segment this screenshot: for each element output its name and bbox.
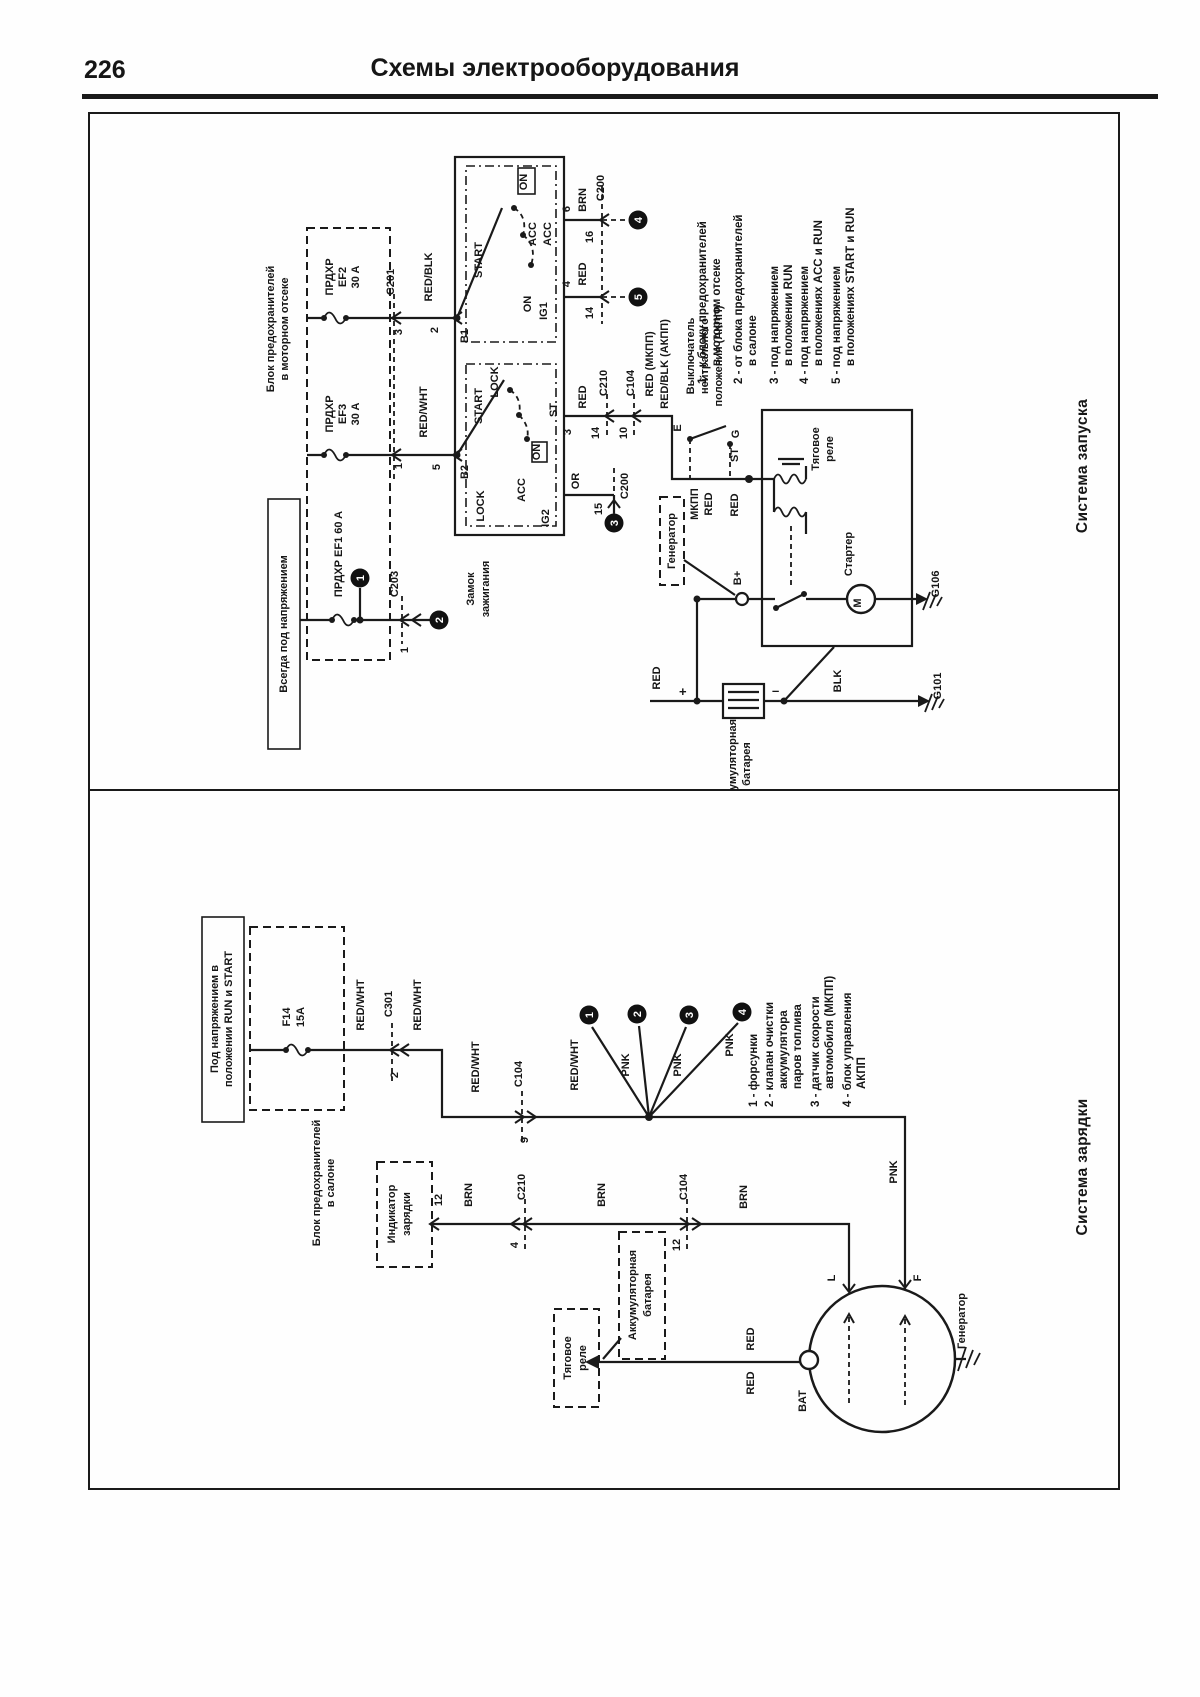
junction-dot <box>343 315 349 321</box>
pin-label: 14 <box>590 426 602 439</box>
callout-number: 3 <box>609 520 621 526</box>
pin-label: 3 <box>562 429 574 435</box>
switch-pos-label: ACC <box>516 478 528 502</box>
switch-pos-label: START <box>473 388 485 424</box>
fuse-ef1-label: ПРДХР EF1 60 A <box>333 511 345 597</box>
junction-dot <box>454 315 461 322</box>
contact-dot <box>520 232 526 238</box>
fuse-ef2-label: EF2 <box>337 267 349 287</box>
terminal-label: B2 <box>459 465 471 479</box>
charge-indicator: Индикатор зарядки 12 <box>377 1162 445 1267</box>
pin-label: 2 <box>389 1072 401 1078</box>
switch-pos-label: LOCK <box>489 366 501 397</box>
legend-line: 1 - форсунки <box>748 1034 760 1107</box>
battery: RED + – BLK G101 Аккумуляторная батарея <box>651 596 944 790</box>
wire-label: RED <box>651 666 663 689</box>
ground-label: G101 <box>932 673 944 700</box>
terminal-label: ST <box>729 448 741 462</box>
connector-label: C210 <box>516 1174 528 1200</box>
wire-label: PNK <box>620 1053 632 1076</box>
fuse-ef2-label: 30 A <box>350 266 362 289</box>
switch-pos-label: START <box>473 242 485 278</box>
connector-label: C200 <box>595 175 607 201</box>
connector-label: C201 <box>385 269 397 295</box>
legend: 1 - форсунки 2 - клапан очистки аккумуля… <box>748 976 868 1107</box>
wire-label: PNK <box>724 1033 736 1056</box>
switch-pos-label: ON <box>518 174 530 191</box>
fuse-f14-label: F14 <box>281 1007 293 1027</box>
alternator-label: Генератор <box>956 1293 968 1349</box>
legend-line: автомобиля (МКПП) <box>824 976 836 1089</box>
junction-dot <box>351 617 357 623</box>
wire-label: МКПП <box>689 488 701 520</box>
wire-label: RED/WHT <box>355 979 367 1031</box>
legend-line: 4 - под напряжением <box>799 266 811 384</box>
terminal-label: E <box>672 424 684 431</box>
ignition-switch-outline <box>455 157 564 535</box>
pin-label: 16 <box>584 231 596 243</box>
pin-label: 14 <box>584 306 596 319</box>
battery-label: Аккумуляторная <box>727 719 739 789</box>
motor-label: M <box>852 598 864 607</box>
callout-number: 1 <box>355 575 367 581</box>
solenoid-label: Тяговое <box>810 427 822 470</box>
legend-line: в положениях START и RUN <box>845 207 857 366</box>
pin-label: 4 <box>509 1241 521 1248</box>
wire-label: OR <box>570 473 582 490</box>
ground-label: G106 <box>930 571 942 598</box>
legend-line: АКПП <box>856 1057 868 1089</box>
pin-label: 5 <box>431 464 443 470</box>
wire-label: RED <box>577 262 589 285</box>
connector-label: C200 <box>619 473 631 499</box>
switch-pos-label: ACC <box>527 222 539 246</box>
switch-outputs: 6 BRN C200 16 4 RED 14 3 RED C210 14 C10… <box>561 175 671 515</box>
pin-label: 12 <box>671 1239 683 1251</box>
fuse-ef3-label: ПРДХР <box>324 395 336 432</box>
alternator-icon <box>809 1286 955 1432</box>
solenoid-label: реле <box>824 436 836 462</box>
callout-number: 4 <box>633 216 645 223</box>
contact-dot <box>524 436 530 442</box>
pin-label: 6 <box>561 206 573 212</box>
wire-label: RED/BLK <box>423 253 435 302</box>
junction-dot <box>357 617 364 624</box>
header-rule <box>82 94 1158 99</box>
battery-label: батарея <box>642 1273 654 1317</box>
wire-label: RED <box>703 492 715 515</box>
fuse-icon <box>286 1045 308 1056</box>
contact-dot <box>687 436 693 442</box>
pin-label: 15 <box>593 503 605 515</box>
solenoid-label: Тяговое <box>562 1336 574 1379</box>
junction-dot <box>283 1047 289 1053</box>
hot-in-run-feed: Под напряжением в положении RUN и START <box>202 917 244 1122</box>
wire-label: RED/WHT <box>412 979 424 1031</box>
wire-label: RED <box>745 1371 757 1394</box>
battery-ref: Аккумуляторная батарея RED RED <box>619 1232 757 1395</box>
callout-number: 4 <box>737 1008 749 1015</box>
callout-number: 2 <box>632 1011 644 1017</box>
starting-system-diagram: Блок предохранителей в моторном отсеке П… <box>90 114 1116 789</box>
contact-dot <box>727 441 733 447</box>
neutral-switch-label: Выключатель <box>685 317 697 394</box>
wire-label: PNK <box>888 1160 900 1183</box>
fuse-ef3-label: 30 A <box>350 403 362 426</box>
always-hot-label: Всегда под напряжением <box>278 555 290 692</box>
solenoid-label: реле <box>577 1345 589 1371</box>
wire-label: RED/WHT <box>569 1039 581 1091</box>
legend-line: аккумулятора <box>778 1010 790 1089</box>
plus-sign: + <box>679 684 687 699</box>
battery-label: батарея <box>741 742 753 786</box>
fuse-ef2-label: ПРДХР <box>324 258 336 295</box>
contact-dot <box>801 591 807 597</box>
manual-page: 226 Схемы электрооборудования Блок предо… <box>0 0 1200 1697</box>
wire-label: BRN <box>463 1183 475 1207</box>
generator-ref: Генератор <box>660 497 684 585</box>
pin-label: 1 <box>393 463 405 469</box>
indicator-label: Индикатор <box>386 1184 398 1243</box>
terminal-label: IG1 <box>538 302 550 320</box>
diagram-title: Система запуска <box>1074 399 1091 533</box>
cabin-fuse-box: Блок предохранителей в салоне F14 15A <box>250 927 344 1246</box>
legend-line: в положениях ACC и RUN <box>813 220 825 366</box>
junction-dot <box>321 315 327 321</box>
wire-label: RED/WHT <box>418 386 430 438</box>
junction-dot <box>745 475 753 483</box>
fuse-ef3-label: EF3 <box>337 404 349 424</box>
switch-pos-label: ON <box>522 296 534 313</box>
engine-fuse-box-outline <box>307 228 390 660</box>
connector-label: C301 <box>383 991 395 1017</box>
wire-label: RED <box>745 1327 757 1350</box>
cabin-fuse-box-label: в салоне <box>325 1159 337 1208</box>
ground-icon <box>958 1347 980 1371</box>
pin-label: 2 <box>429 327 441 333</box>
terminal-label: B+ <box>732 571 744 585</box>
junction-dot <box>781 698 788 705</box>
legend-line: 3 - под напряжением <box>769 266 781 384</box>
engine-fuse-box-label: Блок предохранителей <box>265 266 277 393</box>
wire-label: BRN <box>596 1183 608 1207</box>
junction-dot <box>645 1113 653 1121</box>
callout-number: 3 <box>684 1012 696 1018</box>
diagram-divider <box>90 789 1118 791</box>
terminal-label: B1 <box>459 329 471 343</box>
callout-number: 2 <box>434 617 446 623</box>
contact-dot <box>773 605 779 611</box>
terminal-label: IG2 <box>540 509 552 527</box>
connector-label: C104 <box>513 1060 525 1087</box>
wire-label: RED/BLK (АКПП) <box>659 319 671 409</box>
legend-line: 1 - к блоку предохранителей <box>697 221 709 384</box>
hot-in-run-label: положении RUN и START <box>223 951 235 1087</box>
alternator: L F BAT Генератор <box>797 1274 980 1432</box>
starter-label: Стартер <box>843 532 855 577</box>
battery-label: Аккумуляторная <box>627 1250 639 1340</box>
switch-pos-label: ACC <box>542 222 554 246</box>
switch-pos-label: ON <box>531 444 543 461</box>
legend-line: паров топлива <box>792 1004 804 1089</box>
legend-line: 5 - под напряжением <box>831 266 843 384</box>
pin-label: 4 <box>561 280 573 287</box>
legend-line: в моторном отсеке <box>711 258 723 366</box>
wire-label: RED/WHT <box>470 1041 482 1093</box>
junction-dot <box>343 452 349 458</box>
solenoid-ref: Тяговое реле <box>554 1309 599 1407</box>
junction-dot <box>694 596 701 603</box>
terminal-label: L <box>826 1274 838 1281</box>
cabin-fuse-box-label: Блок предохранителей <box>311 1120 323 1247</box>
contact-dot <box>516 412 522 418</box>
engine-fuse-box-label: в моторном отсеке <box>279 278 291 381</box>
contact-dot <box>507 387 513 393</box>
legend-line: в положении RUN <box>783 264 795 366</box>
switch-pos-label: LOCK <box>475 490 487 521</box>
legend-line: 4 - блок управления <box>842 992 854 1107</box>
connector-label: C210 <box>598 370 610 396</box>
terminal-label: G <box>730 430 742 439</box>
wire-label: RED <box>729 493 741 516</box>
wire-label: RED (МКПП) <box>644 331 656 397</box>
terminal-label: BAT <box>797 1390 809 1412</box>
pin-label: 3 <box>393 329 405 335</box>
starter-assembly: Стартер Тяговое реле B+ M G106 <box>732 410 942 646</box>
brn-wire-run: BRN C210 4 BRN C104 12 BRN <box>463 1173 750 1251</box>
connector-label: C104 <box>625 369 637 396</box>
wire-label: PNK <box>672 1053 684 1076</box>
hot-in-run-label: Под напряжением в <box>209 965 221 1073</box>
minus-sign: – <box>772 683 779 698</box>
pin-label: 9 <box>519 1137 531 1143</box>
legend-line: в салоне <box>747 315 759 366</box>
callout-number: 1 <box>584 1012 596 1018</box>
legend: 1 - к блоку предохранителей в моторном о… <box>697 207 857 384</box>
pin-label: 10 <box>618 427 630 439</box>
junction-dot <box>321 452 327 458</box>
connector-label: C104 <box>678 1173 690 1200</box>
ignition-switch-label: Замок <box>465 572 477 606</box>
legend-line: 2 - клапан очистки <box>764 1002 776 1107</box>
ignition-switch: START LOCK ACC ACC ON ON IG1 B1 START LO… <box>455 157 564 617</box>
bplus-terminal <box>736 593 748 605</box>
pin-label: 1 <box>399 647 411 653</box>
page-title: Схемы электрооборудования <box>85 54 1025 83</box>
legend-line: 3 - датчик скорости <box>810 996 822 1107</box>
ignition-switch-label: зажигания <box>480 561 492 618</box>
wire-label: BRN <box>577 188 589 212</box>
connector-label: C203 <box>389 571 401 597</box>
junction-dot <box>694 698 701 705</box>
fuse-f14-label: 15A <box>295 1007 307 1027</box>
callout-badges: 1 2 3 4 <box>580 1003 752 1025</box>
callout-number: 5 <box>633 294 645 300</box>
contact-dot <box>511 205 517 211</box>
junction-dot <box>329 617 335 623</box>
indicator-label: зарядки <box>401 1192 413 1236</box>
charging-system-diagram: Под напряжением в положении RUN и START … <box>90 793 1116 1486</box>
generator-label: Генератор <box>666 513 678 569</box>
wire-label: RED <box>577 385 589 408</box>
pin-label: 12 <box>433 1194 445 1206</box>
junction-dot <box>305 1047 311 1053</box>
terminal-label: ST <box>548 403 560 417</box>
wire-label: BLK <box>832 670 844 693</box>
wire-label: BRN <box>738 1185 750 1209</box>
diagram-title: Система зарядки <box>1074 1098 1091 1235</box>
legend-line: 2 - от блока предохранителей <box>733 215 745 384</box>
bat-terminal <box>800 1351 818 1369</box>
junction-dot <box>454 452 461 459</box>
contact-dot <box>528 262 534 268</box>
terminal-label: F <box>912 1274 924 1281</box>
starter-outline <box>762 410 912 646</box>
